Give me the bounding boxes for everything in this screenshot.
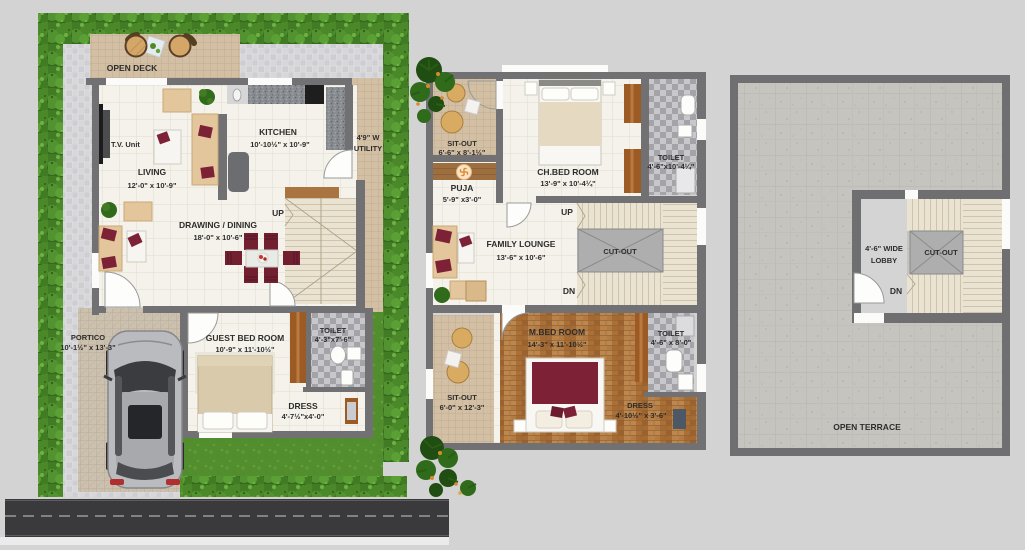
svg-text:DRESS: DRESS <box>627 401 653 410</box>
svg-text:12'-0" x 10'-9": 12'-0" x 10'-9" <box>127 181 176 190</box>
svg-text:4'-7½"x4'-0": 4'-7½"x4'-0" <box>282 412 325 421</box>
svg-text:4'-3"x7'-6": 4'-3"x7'-6" <box>315 335 352 344</box>
svg-text:UTILITY: UTILITY <box>354 144 382 153</box>
svg-text:6'-6" x 8'-1½": 6'-6" x 8'-1½" <box>439 148 486 157</box>
svg-text:DN: DN <box>890 286 902 296</box>
svg-text:5'-9" x3'-0": 5'-9" x3'-0" <box>443 195 482 204</box>
svg-text:UP: UP <box>272 208 284 218</box>
svg-text:4'-6"x10'-4¼": 4'-6"x10'-4¼" <box>648 162 695 171</box>
svg-text:LOBBY: LOBBY <box>871 256 897 265</box>
svg-text:CUT-OUT: CUT-OUT <box>603 247 637 256</box>
svg-text:PORTICO: PORTICO <box>71 333 105 342</box>
svg-text:FAMILY LOUNGE: FAMILY LOUNGE <box>487 239 556 249</box>
svg-text:TOILET: TOILET <box>320 326 347 335</box>
svg-text:4'-10½" x 3'-6": 4'-10½" x 3'-6" <box>615 411 667 420</box>
svg-text:TOILET: TOILET <box>658 329 685 338</box>
svg-text:4'9" W: 4'9" W <box>357 133 381 142</box>
svg-text:UP: UP <box>561 207 573 217</box>
svg-text:10'-10½" x 10'-9": 10'-10½" x 10'-9" <box>250 140 310 149</box>
svg-text:SIT-OUT: SIT-OUT <box>447 393 477 402</box>
svg-text:DN: DN <box>563 286 575 296</box>
svg-text:PUJA: PUJA <box>451 183 474 193</box>
svg-text:GUEST BED ROOM: GUEST BED ROOM <box>206 333 284 343</box>
svg-text:DRESS: DRESS <box>288 401 318 411</box>
svg-text:KITCHEN: KITCHEN <box>259 127 297 137</box>
svg-text:SIT-OUT: SIT-OUT <box>447 139 477 148</box>
svg-text:CH.BED ROOM: CH.BED ROOM <box>537 167 598 177</box>
svg-text:M.BED ROOM: M.BED ROOM <box>529 327 585 337</box>
svg-text:18'-0" x 10'-6": 18'-0" x 10'-6" <box>193 233 242 242</box>
svg-text:T.V. Unit: T.V. Unit <box>111 140 140 149</box>
svg-text:OPEN TERRACE: OPEN TERRACE <box>833 422 901 432</box>
svg-text:10'-1½" x 13'-3": 10'-1½" x 13'-3" <box>60 343 116 352</box>
svg-text:14'-3" x 11'-10½": 14'-3" x 11'-10½" <box>527 340 586 349</box>
svg-text:13'-9" x 10'-4¼": 13'-9" x 10'-4¼" <box>540 179 596 188</box>
svg-text:OPEN DECK: OPEN DECK <box>107 63 158 73</box>
svg-text:4'-6" x 8'-0": 4'-6" x 8'-0" <box>651 338 692 347</box>
svg-text:6'-0" x 12'-3": 6'-0" x 12'-3" <box>440 403 485 412</box>
svg-text:10'-9" x 11'-10½": 10'-9" x 11'-10½" <box>215 345 274 354</box>
svg-text:LIVING: LIVING <box>138 167 167 177</box>
svg-text:TOILET: TOILET <box>658 153 685 162</box>
svg-text:4'-6" WIDE: 4'-6" WIDE <box>865 244 903 253</box>
svg-text:DRAWING / DINING: DRAWING / DINING <box>179 220 257 230</box>
svg-text:CUT-OUT: CUT-OUT <box>924 248 958 257</box>
svg-text:13'-6" x 10'-6": 13'-6" x 10'-6" <box>496 253 545 262</box>
